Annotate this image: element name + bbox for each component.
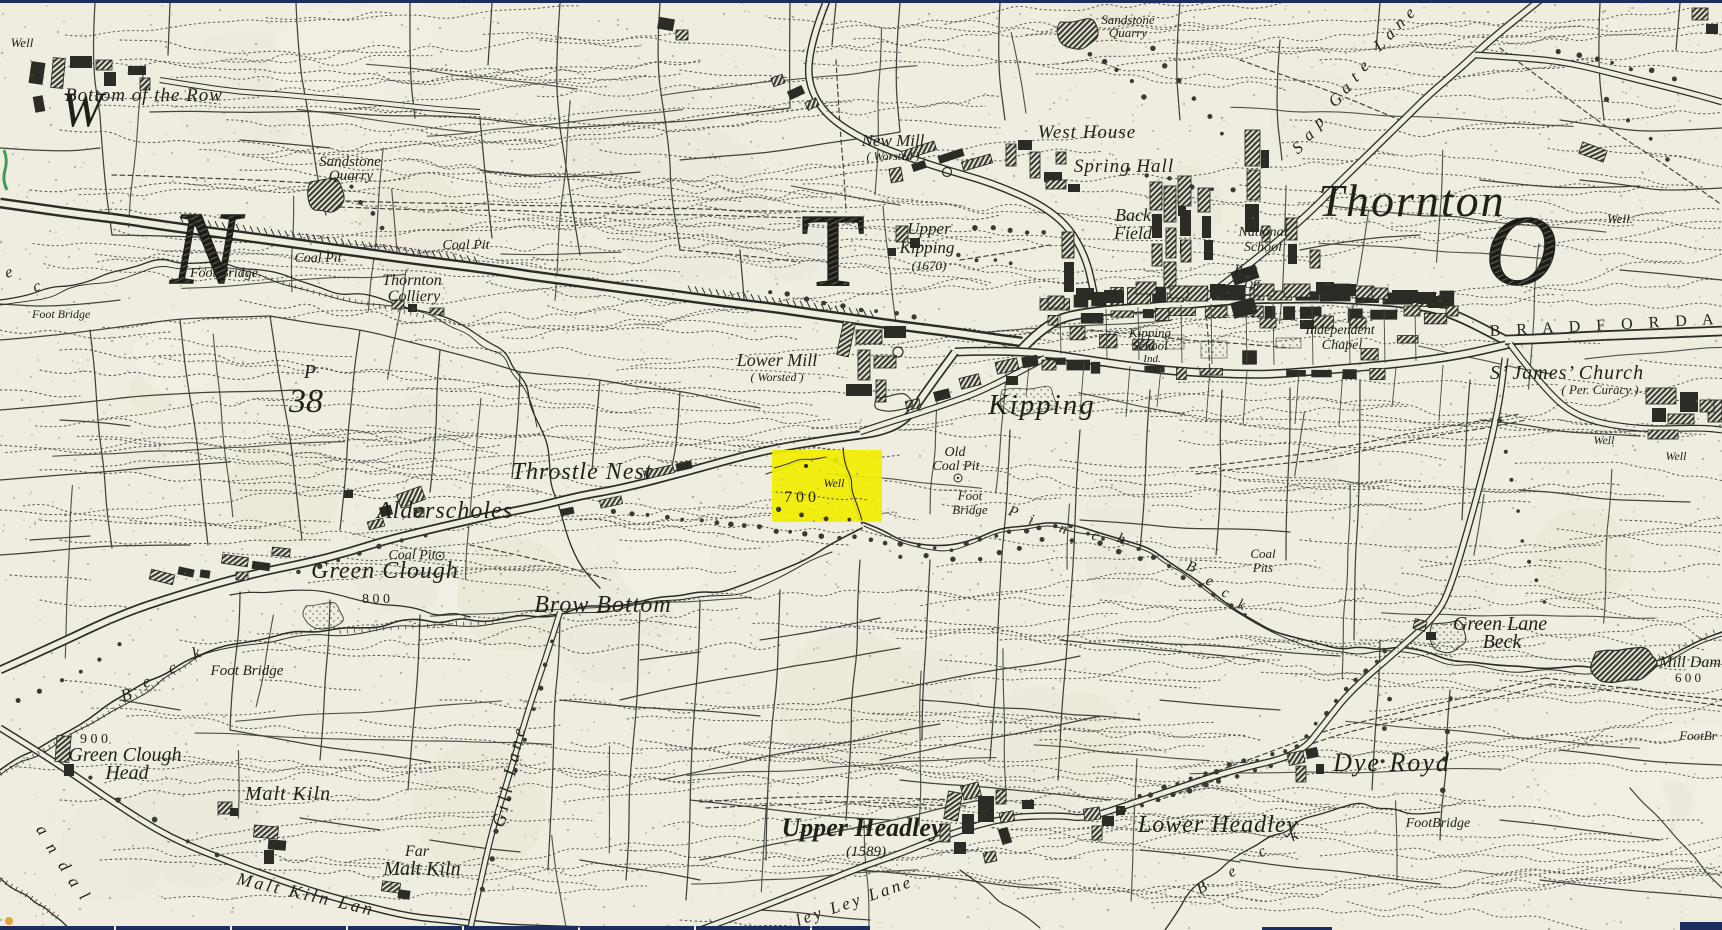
svg-text:Green Clough: Green Clough <box>311 558 459 584</box>
svg-text:Lower Mill: Lower Mill <box>736 350 818 370</box>
svg-text:Quarry: Quarry <box>1109 25 1148 40</box>
svg-text:Colliery: Colliery <box>388 288 441 305</box>
svg-text:O: O <box>1485 195 1557 306</box>
svg-text:Ind.: Ind. <box>1142 353 1160 365</box>
svg-text:Well: Well <box>824 476 846 490</box>
svg-text:Quarry: Quarry <box>329 168 374 184</box>
svg-text:Well.: Well. <box>1607 211 1633 226</box>
svg-text:P: P <box>303 361 316 383</box>
svg-text:Brow Bottom: Brow Bottom <box>534 592 671 618</box>
svg-text:Well: Well <box>1594 433 1616 447</box>
svg-text:( Worsted ): ( Worsted ) <box>751 370 804 384</box>
svg-text:S’ James’ Church: S’ James’ Church <box>1490 362 1644 384</box>
svg-text:(1670): (1670) <box>912 258 947 273</box>
svg-text:Foot: Foot <box>957 488 983 503</box>
svg-text:School: School <box>1132 338 1168 353</box>
svg-text:Dye Royd: Dye Royd <box>1332 748 1451 777</box>
svg-text:Off: Off <box>1244 277 1261 291</box>
svg-text:Coal Pit: Coal Pit <box>442 238 490 253</box>
svg-text:Back: Back <box>1115 205 1152 225</box>
svg-text:National: National <box>1237 225 1287 240</box>
svg-text:Upper: Upper <box>907 219 951 238</box>
svg-text:Well: Well <box>11 35 34 50</box>
svg-text:FootBr: FootBr <box>1678 728 1717 743</box>
svg-text:6 0 0: 6 0 0 <box>1675 670 1701 685</box>
svg-text:W: W <box>61 81 107 137</box>
svg-text:Thornton: Thornton <box>382 272 442 289</box>
svg-text:School: School <box>1244 240 1282 255</box>
svg-text:Coal Pit: Coal Pit <box>932 459 980 474</box>
svg-text:Head: Head <box>104 762 149 784</box>
svg-text:N: N <box>169 191 245 306</box>
svg-text:Bridge: Bridge <box>952 502 988 517</box>
svg-text:Well: Well <box>1666 449 1688 463</box>
svg-text:Upper Headley: Upper Headley <box>781 813 942 842</box>
svg-text:( Worsted ): ( Worsted ) <box>867 149 920 163</box>
svg-text:Kipping: Kipping <box>899 238 955 257</box>
svg-text:Pits: Pits <box>1252 560 1273 575</box>
svg-text:Alderscholes: Alderscholes <box>375 498 513 524</box>
svg-text:7 0 0: 7 0 0 <box>784 489 816 506</box>
svg-text:Malt Kiln: Malt Kiln <box>244 783 331 805</box>
svg-text:8 0 0: 8 0 0 <box>362 592 390 607</box>
svg-text:38: 38 <box>288 383 323 420</box>
svg-text:Coal Pit: Coal Pit <box>294 251 342 266</box>
svg-text:Thornton: Thornton <box>1318 175 1505 226</box>
svg-text:Spring Hall: Spring Hall <box>1074 156 1174 177</box>
svg-text:Mill Dam: Mill Dam <box>1658 654 1721 671</box>
svg-text:Field: Field <box>1113 223 1153 243</box>
svg-text:FootBridge: FootBridge <box>1405 816 1471 831</box>
svg-text:(1589): (1589) <box>846 844 886 860</box>
svg-text:West House: West House <box>1038 122 1137 143</box>
svg-text:Throstle Nest: Throstle Nest <box>512 459 653 485</box>
svg-text:Foot Bridge: Foot Bridge <box>31 307 91 321</box>
svg-text:Independent: Independent <box>1304 323 1375 338</box>
svg-text:Post: Post <box>1233 262 1258 277</box>
svg-text:Kipping: Kipping <box>987 389 1095 421</box>
svg-text:( Per. Curacy ): ( Per. Curacy ) <box>1561 382 1638 397</box>
svg-text:Coal: Coal <box>1250 546 1276 561</box>
svg-text:Old: Old <box>945 445 967 460</box>
svg-text:Lower Headley: Lower Headley <box>1137 812 1298 838</box>
svg-text:New Mill: New Mill <box>861 131 925 150</box>
svg-text:Malt Kiln: Malt Kiln <box>382 858 460 880</box>
